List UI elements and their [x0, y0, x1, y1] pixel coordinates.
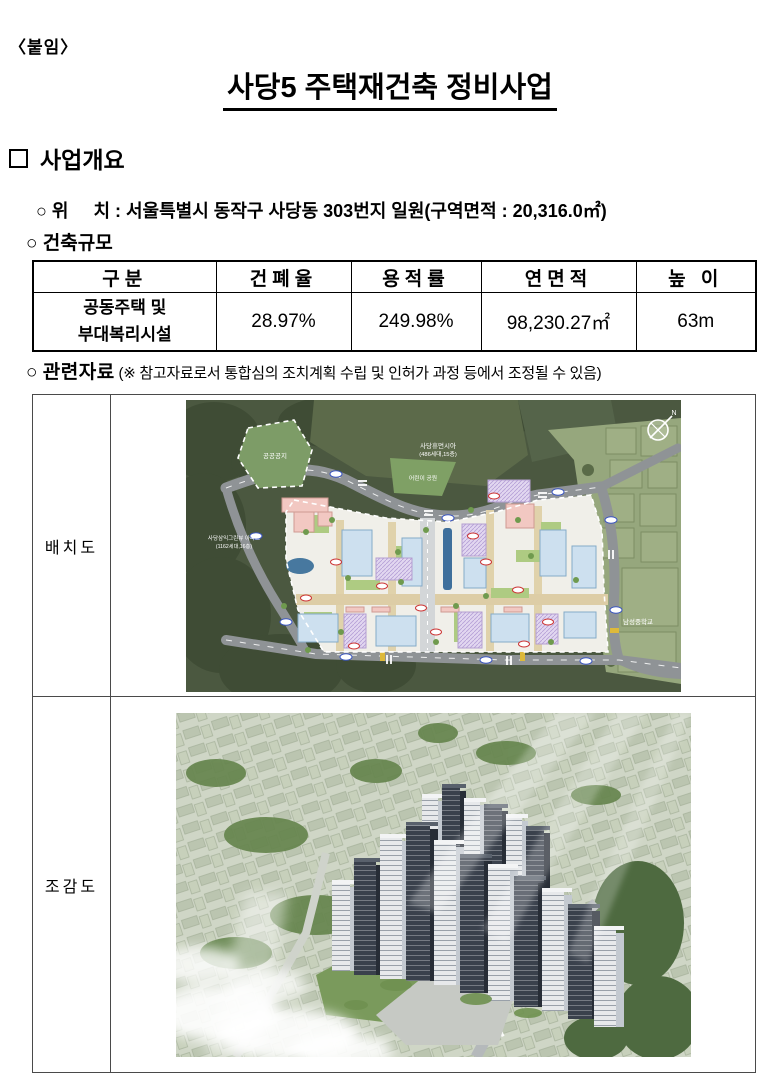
spec-gfa-value: 98,230.27㎡ — [481, 293, 636, 352]
site-plan-row: 배치도 — [33, 395, 756, 697]
map-label-north-apartment: 사당휴먼시아 — [420, 441, 456, 450]
spec-col-category: 구분 — [33, 261, 216, 293]
map-label-school: 남성중학교 — [623, 617, 653, 626]
spec-col-coverage: 건폐율 — [216, 261, 351, 293]
related-bullet: ○ — [26, 362, 43, 383]
spec-col-gfa: 연면적 — [481, 261, 636, 293]
figures-table: 배치도 — [32, 394, 756, 1073]
document-page: 〈붙임〉 사당5 주택재건축 정비사업 사업개요 ○ 위 치 : 서울특별시 동… — [0, 0, 780, 1086]
spec-col-far: 용적률 — [351, 261, 481, 293]
spec-data-row: 공동주택 및 부대복리시설 28.97% 249.98% 98,230.27㎡ … — [33, 293, 756, 352]
spec-height-value: 63m — [636, 293, 756, 352]
page-title: 사당5 주택재건축 정비사업 — [223, 64, 557, 111]
spec-coverage-value: 28.97% — [216, 293, 351, 352]
birds-eye-cell — [111, 697, 756, 1073]
spec-category-line1: 공동주택 및 — [34, 295, 216, 321]
birds-eye-row: 조감도 — [33, 697, 756, 1073]
site-plan-label: 배치도 — [33, 395, 111, 697]
section-heading-overview: 사업개요 — [9, 141, 125, 175]
birds-eye-image — [176, 713, 691, 1057]
location-line: ○ 위 치 : 서울특별시 동작구 사당동 303번지 일원(구역면적 : 20… — [36, 197, 607, 223]
spec-category-line2: 부대복리시설 — [34, 322, 216, 348]
related-note: (※ 참고자료로서 통합심의 조치계획 수립 및 인허가 과정 등에서 조정될 … — [115, 365, 602, 382]
map-label-children-park: 어린이 공원 — [408, 474, 436, 482]
spec-header-row: 구분 건폐율 용적률 연면적 높 이 — [33, 261, 756, 293]
spec-category-cell: 공동주택 및 부대복리시설 — [33, 293, 216, 352]
title-wrap: 사당5 주택재건축 정비사업 — [0, 64, 780, 111]
spec-col-height: 높 이 — [636, 261, 756, 293]
overview-heading-text: 사업개요 — [40, 141, 125, 175]
attachment-label: 〈붙임〉 — [9, 33, 78, 58]
compass-north-label: N — [671, 410, 676, 417]
map-label-public-space: 공공공지 — [263, 451, 287, 460]
spec-far-value: 249.98% — [351, 293, 481, 352]
related-data-line: ○ 관련자료 (※ 참고자료로서 통합심의 조치계획 수립 및 인허가 과정 등… — [26, 357, 601, 384]
site-plan-image: N 공공공지 사당휴먼시아 (486세대,15층) 어린이 공원 사당삼익그린뷰… — [186, 400, 681, 692]
hollow-square-icon — [9, 149, 28, 168]
map-label-west-apartment-detail: (1162세대,16층) — [215, 542, 251, 550]
site-plan-cell: N 공공공지 사당휴먼시아 (486세대,15층) 어린이 공원 사당삼익그린뷰… — [111, 395, 756, 697]
birds-eye-label: 조감도 — [33, 697, 111, 1073]
map-label-north-apartment-detail: (486세대,15층) — [419, 450, 457, 458]
building-scale-line: ○ 건축규모 — [26, 228, 113, 255]
building-scale-table: 구분 건폐율 용적률 연면적 높 이 공동주택 및 부대복리시설 28.97% … — [32, 260, 757, 352]
related-heading: 관련자료 — [43, 362, 115, 383]
map-label-west-apartment: 사당삼익그린뷰 아파트 — [207, 534, 259, 542]
